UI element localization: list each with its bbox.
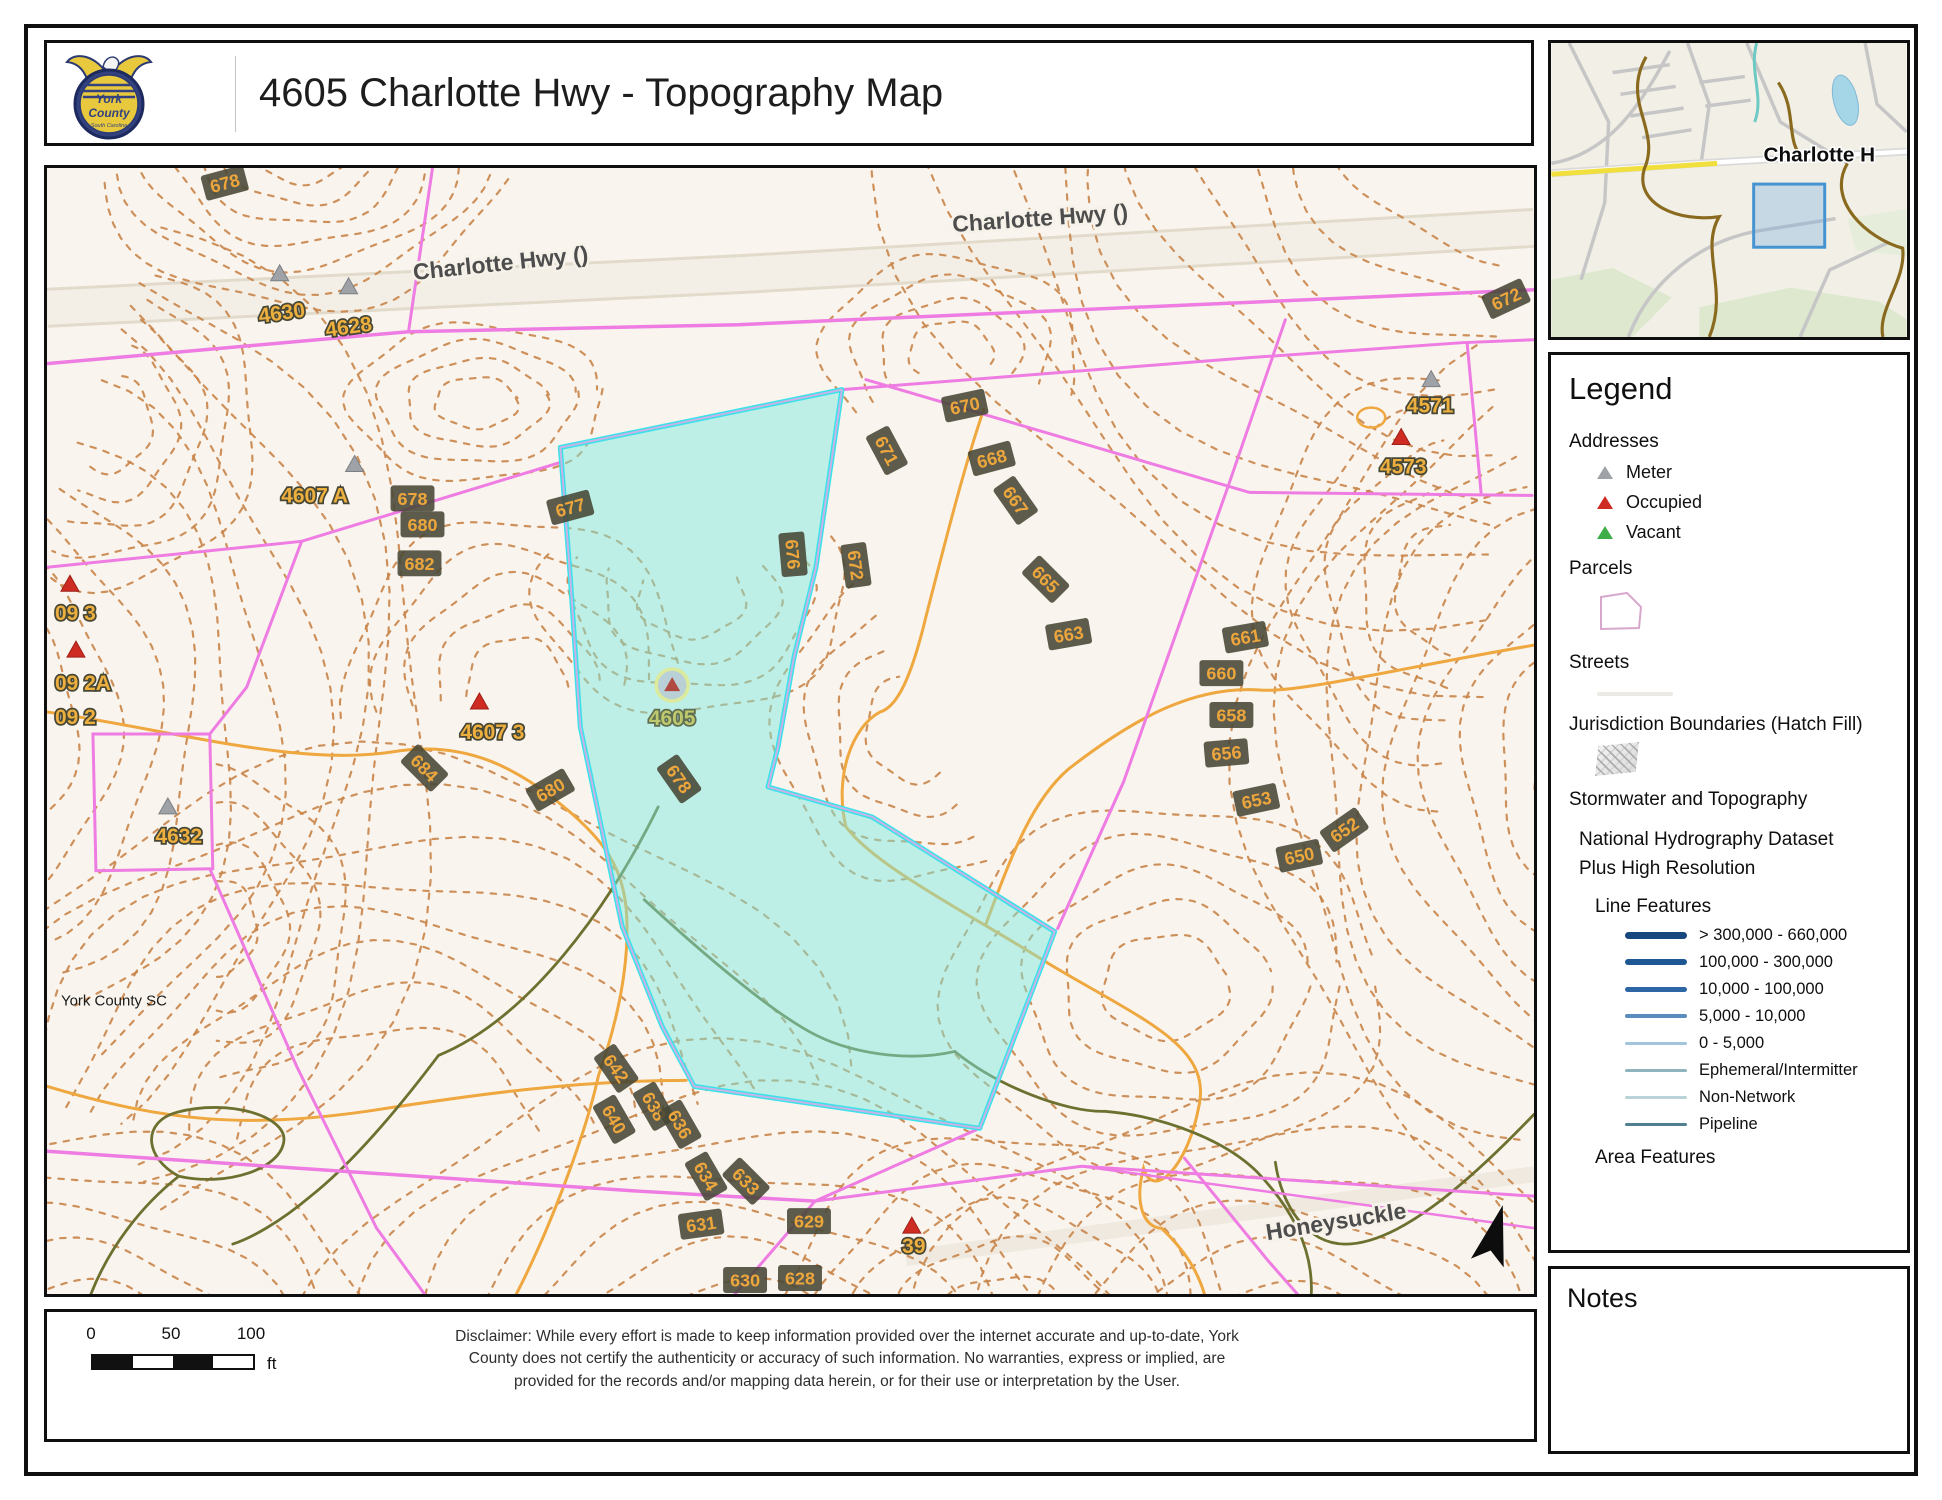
contour-label: 682 <box>398 550 442 576</box>
address-label: 09 2A <box>55 672 111 695</box>
svg-text:682: 682 <box>405 554 435 574</box>
address-marker-occupied <box>903 1217 921 1233</box>
street-swatch-icon <box>1597 692 1673 696</box>
svg-text:630: 630 <box>730 1271 760 1291</box>
minimap-street-label: Charlotte H <box>1764 143 1876 166</box>
line-feature-label: > 300,000 - 660,000 <box>1699 926 1847 945</box>
line-feature-label: 0 - 5,000 <box>1699 1034 1764 1053</box>
contour-label: 631 <box>678 1208 725 1240</box>
scale-tick-100: 100 <box>237 1324 265 1344</box>
legend-line-features-list: > 300,000 - 660,000100,000 - 300,00010,0… <box>1567 926 1891 1134</box>
svg-text:County: County <box>88 106 131 120</box>
line-feature-swatch-icon <box>1625 1096 1687 1099</box>
legend-address-item-meter: Meter <box>1597 462 1891 483</box>
scale-unit: ft <box>267 1354 276 1374</box>
address-label: 09 2 <box>55 706 96 729</box>
svg-text:York: York <box>96 92 124 106</box>
line-feature-swatch-icon <box>1625 932 1687 939</box>
notes-panel: Notes <box>1548 1266 1910 1454</box>
svg-text:South Carolina: South Carolina <box>91 123 127 129</box>
minimap-drawing: Charlotte H <box>1551 43 1907 337</box>
legend-line-feature-row: Pipeline <box>1625 1115 1891 1134</box>
legend-line-feature-row: 0 - 5,000 <box>1625 1034 1891 1053</box>
contour-label: 630 <box>723 1267 767 1293</box>
svg-text:631: 631 <box>685 1213 717 1237</box>
contour-label: 680 <box>401 511 445 537</box>
line-feature-swatch-icon <box>1625 1069 1687 1072</box>
scale-bar: 0 50 100 ft <box>67 1324 347 1414</box>
address-marker-occupied <box>61 575 79 591</box>
line-feature-swatch-icon <box>1625 959 1687 965</box>
jurisdiction-hatch-icon <box>1595 742 1639 776</box>
contour-label: 663 <box>1045 618 1093 651</box>
contour-label: 660 <box>1199 660 1243 686</box>
contour-label: 672 <box>1481 278 1532 320</box>
header-divider <box>235 56 236 132</box>
contour-label: 678 <box>200 168 249 201</box>
contour-lines <box>47 168 1534 1294</box>
minimap-extent-rect <box>1754 184 1825 247</box>
street-label: Charlotte Hwy () <box>951 199 1128 237</box>
contour-label: 668 <box>967 440 1016 476</box>
svg-text:656: 656 <box>1211 742 1243 765</box>
occupied-triangle-icon <box>1597 496 1613 509</box>
line-feature-label: 5,000 - 10,000 <box>1699 1007 1805 1026</box>
address-marker-meter <box>159 798 177 814</box>
legend-address-item-vacant: Vacant <box>1597 522 1891 543</box>
legend-section-jurisdiction: Jurisdiction Boundaries (Hatch Fill) <box>1569 714 1891 736</box>
address-label: 4605 <box>649 707 696 730</box>
legend-section-parcels: Parcels <box>1569 558 1891 580</box>
map-drawing: 6786726706716686676766726656636616606586… <box>47 168 1534 1294</box>
address-marker-meter <box>346 455 364 471</box>
legend-line-feature-row: 5,000 - 10,000 <box>1625 1007 1891 1026</box>
contour-label: 671 <box>865 425 909 476</box>
address-marker-occupied <box>67 641 85 657</box>
notes-title: Notes <box>1567 1283 1907 1314</box>
line-feature-swatch-icon <box>1625 1123 1687 1126</box>
svg-text:660: 660 <box>1206 664 1236 684</box>
contour-label: 667 <box>992 475 1038 526</box>
address-label: 4607 A <box>281 484 348 507</box>
legend-item-label: Vacant <box>1626 522 1681 543</box>
page-title: 4605 Charlotte Hwy - Topography Map <box>259 43 943 143</box>
legend-line-feature-row: 100,000 - 300,000 <box>1625 953 1891 972</box>
svg-text:678: 678 <box>398 489 428 509</box>
legend-nhd-label: National Hydrography Dataset Plus High R… <box>1579 825 1891 884</box>
header-bar: York County South Carolina 4605 Charlott… <box>44 40 1534 146</box>
line-feature-label: 100,000 - 300,000 <box>1699 953 1833 972</box>
legend-section-addresses: Addresses <box>1569 431 1891 453</box>
overview-minimap: Charlotte H <box>1548 40 1910 340</box>
subject-parcel-marker <box>656 669 688 701</box>
line-feature-swatch-icon <box>1625 987 1687 992</box>
legend-line-feature-row: > 300,000 - 660,000 <box>1625 926 1891 945</box>
legend-section-stormwater: Stormwater and Topography <box>1569 789 1891 811</box>
legend-section-streets: Streets <box>1569 652 1891 674</box>
disclaimer-text: Disclaimer: While every effort is made t… <box>445 1326 1249 1393</box>
map-watermark: York County SC <box>61 993 167 1010</box>
contour-label: 652 <box>1319 807 1370 853</box>
scale-bar-segments <box>91 1354 255 1370</box>
address-label: 4628 <box>324 313 374 342</box>
svg-text:629: 629 <box>794 1212 824 1232</box>
line-feature-label: Ephemeral/Intermitter <box>1699 1061 1858 1080</box>
legend-line-feature-row: Non-Network <box>1625 1088 1891 1107</box>
svg-text:672: 672 <box>843 549 867 581</box>
address-label: 4573 <box>1380 455 1427 478</box>
address-label: 39 <box>902 1235 925 1258</box>
footer-bar: 0 50 100 ft Disclaimer: While every effo… <box>44 1309 1537 1442</box>
address-label: 4607 3 <box>460 721 524 744</box>
address-marker-occupied <box>470 693 488 709</box>
contour-label: 678 <box>391 485 435 511</box>
contour-label: 629 <box>787 1208 831 1234</box>
legend-address-items: MeterOccupiedVacant <box>1567 462 1891 543</box>
svg-text:628: 628 <box>785 1269 815 1289</box>
parcel-swatch-icon <box>1597 590 1891 637</box>
legend-address-item-occupied: Occupied <box>1597 492 1891 513</box>
contour-label: 680 <box>525 768 576 812</box>
contour-label: 653 <box>1232 783 1280 818</box>
legend-item-label: Meter <box>1626 462 1672 483</box>
svg-text:658: 658 <box>1216 706 1246 726</box>
address-label: 4632 <box>156 825 203 848</box>
scale-tick-50: 50 <box>162 1324 181 1344</box>
legend-title: Legend <box>1569 371 1891 407</box>
svg-text:676: 676 <box>781 539 804 571</box>
line-feature-label: Non-Network <box>1699 1088 1795 1107</box>
contour-label: 672 <box>840 542 872 589</box>
line-feature-swatch-icon <box>1625 1014 1687 1018</box>
legend-line-features-label: Line Features <box>1595 896 1891 918</box>
contour-label: 676 <box>778 531 808 577</box>
line-feature-label: 10,000 - 100,000 <box>1699 980 1824 999</box>
legend-area-features-label: Area Features <box>1595 1147 1891 1169</box>
address-label: 4571 <box>1407 395 1454 418</box>
address-label: 09 3 <box>55 602 96 625</box>
legend-item-label: Occupied <box>1626 492 1702 513</box>
subject-parcel-highlight <box>560 390 1054 1129</box>
york-county-logo-icon: York County South Carolina <box>63 47 155 141</box>
scale-tick-0: 0 <box>86 1324 95 1344</box>
contour-label: 650 <box>1275 839 1323 874</box>
meter-triangle-icon <box>1597 466 1613 479</box>
vacant-triangle-icon <box>1597 526 1613 539</box>
line-feature-swatch-icon <box>1625 1042 1687 1046</box>
legend-line-feature-row: 10,000 - 100,000 <box>1625 980 1891 999</box>
svg-text:680: 680 <box>407 515 437 535</box>
topography-map-canvas: 6786726706716686676766726656636616606586… <box>44 165 1537 1297</box>
contour-label: 656 <box>1203 738 1249 768</box>
legend-line-feature-row: Ephemeral/Intermitter <box>1625 1061 1891 1080</box>
line-feature-label: Pipeline <box>1699 1115 1758 1134</box>
legend-panel: Legend Addresses MeterOccupiedVacant Par… <box>1548 352 1910 1253</box>
contour-label: 640 <box>592 1094 636 1145</box>
contour-label: 661 <box>1221 621 1269 654</box>
contour-label: 628 <box>778 1265 822 1291</box>
contour-label: 665 <box>1021 555 1070 604</box>
north-arrow-icon <box>1471 1201 1519 1268</box>
address-marker-occupied <box>1392 429 1410 445</box>
contour-label: 658 <box>1209 702 1253 728</box>
